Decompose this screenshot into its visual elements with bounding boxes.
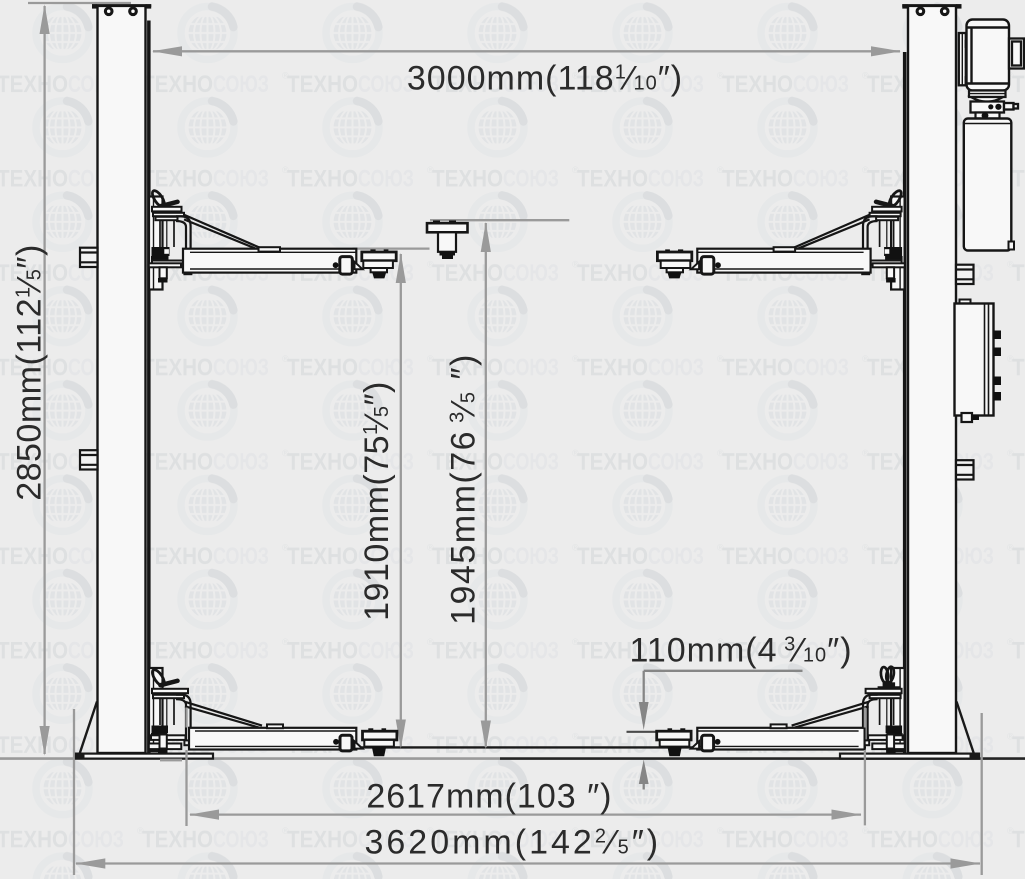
- svg-text:2617mm(103 ″): 2617mm(103 ″): [366, 778, 612, 816]
- svg-text:2850mm(1121⁄5″): 2850mm(1121⁄5″): [10, 244, 48, 501]
- svg-text:3620mm(1422⁄5″): 3620mm(1422⁄5″): [364, 824, 661, 862]
